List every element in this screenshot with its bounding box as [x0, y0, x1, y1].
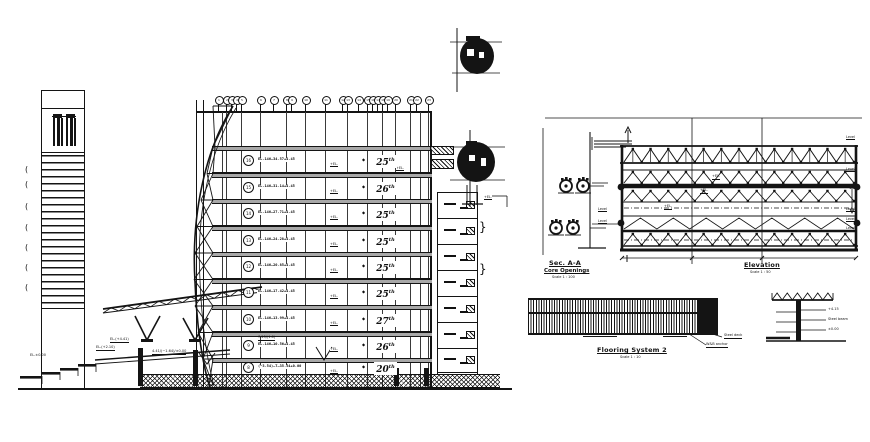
annex-shaft-hatch — [466, 356, 475, 364]
slab-bottom-line — [212, 177, 432, 178]
truss-band2b-node — [809, 190, 811, 192]
floor-name-label: 20th — [374, 362, 397, 375]
truss-band1-node — [826, 148, 828, 150]
truss-band2b-node — [658, 200, 660, 202]
ramp-label: EL.(+2.10) — [96, 346, 115, 351]
floor-name-label: 25th — [374, 235, 397, 248]
truss-band1 — [624, 149, 854, 162]
slab-top-line — [212, 305, 432, 306]
core-opening-bolt — [572, 219, 575, 222]
truss-annotation: +EL. — [712, 175, 720, 180]
lift-bar — [74, 118, 76, 146]
truss-band3b-node — [755, 233, 757, 235]
slab-top-line — [212, 358, 432, 359]
core-opening-pin — [554, 226, 557, 229]
floor-number-bubble: 13 — [243, 235, 254, 246]
column-line — [367, 112, 368, 388]
floor-el-tag: +EL. — [330, 243, 338, 247]
floor-el-tag: +EL. — [330, 295, 338, 299]
truss-band1-node — [667, 148, 669, 150]
facade-brace — [195, 280, 213, 307]
facade-mast-line — [196, 100, 197, 388]
truss-band3b-node — [694, 244, 696, 246]
site-step — [20, 376, 42, 379]
truss-band2b-node — [632, 190, 634, 192]
truss-band1-node — [738, 148, 740, 150]
annex-shaft-hatch — [466, 253, 475, 261]
floor-name-label: 25th — [374, 261, 397, 274]
truss-band2a-node — [658, 182, 660, 184]
column-base-pad — [189, 339, 201, 342]
floor-diamond-marker: ◆ — [362, 158, 365, 162]
column-line — [347, 112, 348, 388]
truss-band3b-node — [720, 233, 722, 235]
truss-band1-node — [782, 161, 784, 163]
floor-elevation-text: EL.146—31.14+4.45 — [257, 185, 296, 189]
tower-tick: ( — [25, 264, 28, 273]
annex-room-mark — [444, 203, 456, 205]
facade-brace — [198, 333, 213, 360]
tree-detail-label: Steel beam — [828, 318, 848, 322]
column-line — [241, 112, 242, 388]
floor-diamond-marker: ◆ — [362, 185, 365, 189]
grid-bubble: 10 — [302, 96, 311, 105]
grid-bubble: 5 — [238, 96, 247, 105]
grid-bubble: 14 — [355, 96, 364, 105]
annex-shaft-hatch — [466, 279, 475, 287]
annex-shaft-hatch — [466, 201, 475, 209]
truss-band2a-node — [809, 171, 811, 173]
level-tag-right: Level — [846, 168, 855, 172]
canopy-web — [143, 304, 151, 307]
truss-band3a — [624, 218, 854, 229]
core-opening-bolt — [576, 220, 579, 223]
dim-arrow — [850, 185, 854, 189]
canopy-web — [167, 299, 175, 305]
slab-bottom-line — [212, 203, 432, 204]
sec-aa-title: Sec. A-A — [549, 260, 581, 267]
truss-band2b-node — [817, 200, 819, 202]
tower-louver-stripes — [42, 155, 84, 308]
annex-room-mark — [444, 255, 456, 257]
column-base-pad — [141, 339, 153, 342]
foundation-hatch — [140, 374, 432, 388]
annex-room-mark — [444, 281, 456, 283]
floor-diamond-marker: ◆ — [362, 238, 365, 242]
canopy-web — [159, 301, 167, 304]
flooring-callout: W&B anchor — [706, 343, 728, 348]
truss-band3b-node — [809, 233, 811, 235]
truss-band2a-node — [738, 171, 740, 173]
truss-band2b-node — [649, 190, 651, 192]
attic-el-tag: +EL. — [396, 167, 404, 171]
floor-elevation-text: EL.146—34.57+4.45 — [257, 158, 296, 162]
truss-pin — [618, 220, 625, 227]
truss-band3b-node — [800, 244, 802, 246]
dim-tick — [620, 256, 624, 260]
core-opening-bolt — [561, 178, 564, 181]
canopy-v-column — [135, 316, 160, 340]
truss-band2a — [624, 172, 854, 183]
truss-band1-node — [764, 161, 766, 163]
truss-band2a-node — [817, 182, 819, 184]
tower-divider — [41, 108, 85, 109]
annex-left-wall — [437, 192, 438, 374]
truss-band1-node — [658, 161, 660, 163]
truss-band3b-node — [658, 244, 660, 246]
floor-el-tag: +EL. — [330, 216, 338, 220]
truss-band1-node — [729, 161, 731, 163]
truss-band1-node — [702, 148, 704, 150]
grid-bubble: 13 — [344, 96, 353, 105]
truss-band3b-node — [676, 244, 678, 246]
canopy-web — [190, 297, 198, 301]
canopy-web — [119, 306, 127, 311]
truss-band3b-node — [640, 244, 642, 246]
truss-band3b-node — [632, 233, 634, 235]
facade-brace — [195, 306, 213, 333]
truss-band3b-node — [835, 244, 837, 246]
tower-tick: ( — [25, 181, 28, 190]
core-opening — [550, 222, 562, 234]
truss-band1-node — [817, 161, 819, 163]
truss-band2b-node — [844, 190, 846, 192]
floor-elevation-text: EL.146—20.85+4.45 — [257, 264, 296, 268]
truss-band2a-node — [685, 171, 687, 173]
annex-room-mark — [444, 333, 456, 335]
annex-el-tag: +EL. — [484, 196, 492, 200]
truss-band1-node — [800, 161, 802, 163]
canopy-web — [127, 306, 135, 309]
floor-elevation-text: EL.146—27.71+4.45 — [257, 211, 296, 215]
dim-tick — [760, 256, 764, 260]
facade-brace — [197, 227, 213, 254]
column-line — [260, 112, 261, 388]
floor-number-bubble: 12 — [243, 261, 254, 272]
tower-divider — [41, 308, 85, 309]
truss-band1-node — [853, 161, 855, 163]
flooring-callout: Steel deck — [724, 334, 742, 339]
ground-line — [18, 388, 512, 390]
tower-roof-line — [41, 90, 85, 91]
slab-top-line — [212, 331, 432, 332]
floor-diamond-marker: ◆ — [362, 211, 365, 215]
truss-band3b-node — [685, 233, 687, 235]
facade-brace — [198, 306, 213, 333]
grid-bubble: 6 — [257, 96, 266, 105]
core-opening — [560, 180, 572, 192]
tower-tick: ( — [25, 203, 28, 212]
facade-brace — [195, 253, 213, 280]
lift-bar — [57, 118, 60, 146]
truss-band2a-node — [755, 171, 757, 173]
annex-floor-line — [437, 192, 478, 193]
truss-band2b-node — [773, 190, 775, 192]
floor-name-label: 25th — [374, 287, 397, 300]
tower-right-wall — [84, 90, 85, 389]
truss-band3b-node — [738, 233, 740, 235]
floor-el-tag: +EL. — [330, 322, 338, 326]
truss-band3b-node — [649, 233, 651, 235]
core-opening-bolt — [569, 178, 572, 181]
tower-tick: ( — [25, 284, 28, 293]
core-opening-bolt — [578, 178, 581, 181]
floor-el-tag: +EL. — [330, 269, 338, 273]
ramp-label: 4.41/(−1.64)/±0.00 — [152, 350, 186, 355]
truss-band2b-node — [667, 190, 669, 192]
floor-diamond-marker: ◆ — [362, 290, 365, 294]
floor-name-label: 26th — [374, 340, 397, 353]
core-opening — [577, 180, 589, 192]
dim-tick — [690, 256, 694, 260]
lift-bar — [66, 118, 68, 146]
annex-brace-mark: } — [479, 221, 487, 233]
lift-bar — [53, 118, 55, 146]
truss-band1-node — [720, 148, 722, 150]
slab-bottom-line — [212, 283, 432, 284]
truss-band2b-node — [791, 190, 793, 192]
core-opening-pin — [581, 184, 584, 187]
canopy-post — [138, 348, 143, 386]
truss-band1-node — [747, 161, 749, 163]
tower-divider — [41, 152, 85, 153]
level-tag-left: Level — [598, 220, 607, 224]
lift-bar — [70, 118, 73, 146]
floor-el-tag: +EL. — [330, 348, 338, 352]
site-step — [42, 372, 60, 375]
truss-band3b-node — [826, 233, 828, 235]
core-opening-pin — [571, 226, 574, 229]
truss-band2a-node — [853, 182, 855, 184]
node-b-hole — [481, 158, 486, 166]
truss-pin — [854, 184, 861, 191]
truss-band2a-node — [826, 171, 828, 173]
floor-number-bubble: 15 — [243, 182, 254, 193]
site-step — [60, 368, 78, 371]
annex-room-mark — [444, 358, 456, 360]
node-a-cap — [466, 36, 480, 41]
floor-elevation-text: EL.146—13.99+4.45 — [257, 317, 296, 321]
level-tag-right: Level — [846, 227, 855, 231]
truss-band2b-node — [711, 200, 713, 202]
node-b-hole — [469, 155, 475, 161]
slab-top-line — [212, 172, 432, 173]
truss-band2b-node — [729, 200, 731, 202]
truss-band2b-node — [853, 200, 855, 202]
slab-bottom-line — [212, 336, 432, 337]
floor-number-bubble: 11 — [243, 287, 254, 298]
truss-band2a-node — [632, 171, 634, 173]
truss-band2b-node — [720, 190, 722, 192]
truss-band2a-node — [773, 171, 775, 173]
canopy-web — [175, 299, 183, 302]
annex-floor-line — [437, 322, 478, 323]
elevation-scale: Scale 1 : 50 — [750, 271, 771, 275]
truss-band2b-node — [826, 190, 828, 192]
column-line — [325, 112, 326, 388]
truss-band1-node — [711, 161, 713, 163]
truss-band2b — [624, 191, 854, 201]
annex-room-mark — [444, 229, 456, 231]
floor-diamond-marker: ◆ — [362, 264, 365, 268]
ramp-line — [95, 354, 230, 364]
flooring-scale: Scale 1 : 10 — [620, 356, 641, 360]
truss-band2a-node — [729, 182, 731, 184]
truss-band1-node — [835, 161, 837, 163]
lift-bar — [61, 118, 63, 146]
cad-sheet: ((((((( 12345678910111213141516171819202… — [0, 0, 870, 442]
canopy-web — [135, 304, 143, 309]
column-line — [305, 112, 306, 388]
floor-number-bubble: 14 — [243, 208, 254, 219]
canopy-web — [230, 290, 238, 296]
annex-floor-line — [437, 296, 478, 297]
truss-band2b-node — [764, 200, 766, 202]
canopy-web — [183, 297, 191, 303]
truss-annotation: +EL. — [700, 189, 708, 194]
facade-brace — [197, 200, 213, 227]
truss-band2a-node — [667, 171, 669, 173]
slab-top-line — [212, 146, 432, 147]
column-line — [222, 112, 223, 388]
floor-name-label: 26th — [374, 182, 397, 195]
truss-band3b-node — [817, 244, 819, 246]
annex-shaft-hatch — [466, 331, 475, 339]
truss-band3b-node — [667, 233, 669, 235]
tree-canopy-web — [772, 293, 833, 300]
truss-band2b-node — [676, 200, 678, 202]
level-tag-right: Level — [846, 208, 855, 212]
floor-elevation-text: EL.146—24.28+4.45 — [257, 238, 296, 242]
dim-tick — [854, 256, 858, 260]
annex-shaft-hatch — [466, 227, 475, 235]
ramp-label: EL.(+4.41) — [110, 338, 129, 343]
slab-top-line — [212, 225, 432, 226]
deck-solid-end — [698, 298, 718, 333]
floor-number-bubble: 8 — [243, 362, 254, 373]
core-opening-bolt — [551, 220, 554, 223]
annex-stub-hatch — [430, 159, 454, 169]
floor-number-bubble: 16 — [243, 155, 254, 166]
slab-bottom-line — [212, 230, 432, 231]
annex-floor-line — [437, 372, 478, 373]
truss-band1-node — [649, 148, 651, 150]
truss-band2b-node — [694, 200, 696, 202]
truss-band1-node — [844, 148, 846, 150]
floor-elevation-text: (−3.54)—T—35.54+0.00 — [257, 365, 302, 369]
floor-number-bubble: 9 — [243, 340, 254, 351]
floor-el-tag: +EL. — [330, 370, 338, 374]
truss-band3b-node — [773, 233, 775, 235]
tree-detail-label: ±0.00 — [828, 328, 839, 332]
slab-top-line — [212, 252, 432, 253]
truss-band3b-node — [702, 233, 704, 235]
truss-band2b-node — [835, 200, 837, 202]
canopy-web — [103, 308, 111, 313]
floor-el-tag: +EL. — [330, 190, 338, 194]
facade-mast-line — [203, 100, 204, 388]
annex-shaft-hatch — [466, 305, 475, 313]
site-step — [78, 364, 96, 367]
floor-number-bubble: 10 — [243, 314, 254, 325]
truss-band1-node — [685, 148, 687, 150]
truss-band2a-node — [649, 171, 651, 173]
truss-band2a-node — [694, 182, 696, 184]
tower-tick: ( — [25, 166, 28, 175]
floor-name-label: 27th — [374, 314, 397, 327]
truss-band3b-node — [764, 244, 766, 246]
truss-band2a-node — [764, 182, 766, 184]
slab-bottom-line — [212, 150, 432, 151]
level-tag-right: Level — [846, 218, 855, 222]
grid-bubble: 7 — [270, 96, 279, 105]
core-opening-pin — [564, 184, 567, 187]
truss-band2a-node — [800, 182, 802, 184]
level-tag-right: Level — [846, 136, 855, 140]
canopy-web — [151, 301, 159, 306]
deck-mid-chord — [528, 312, 718, 314]
floor-diamond-marker: ◆ — [362, 317, 365, 321]
truss-band1-node — [791, 148, 793, 150]
node-b-cap — [466, 141, 477, 147]
floor-diamond-marker: ◆ — [362, 343, 365, 347]
facade-brace — [195, 227, 213, 254]
floor-elevation-text: EL.146—17.42+4.45 — [257, 290, 296, 294]
elevation-title: Elevation — [744, 262, 780, 269]
node-a-hole — [479, 52, 484, 58]
floor-elevation-text: EL.146—10.56+4.45 — [257, 343, 296, 347]
tower-tick: ( — [25, 224, 28, 233]
deck-hatch-band — [528, 298, 718, 335]
truss-pin — [618, 184, 625, 191]
truss-band2a-node — [711, 182, 713, 184]
core-opening-bolt — [586, 178, 589, 181]
core-opening — [567, 222, 579, 234]
flooring-title: Flooring System 2 — [597, 347, 667, 354]
canopy-web — [206, 295, 214, 299]
sec-aa-scale: Scale 1 : 100 — [552, 276, 575, 280]
annex-floor-line — [437, 270, 478, 271]
truss-band2a-node — [702, 171, 704, 173]
truss-band2b-node — [685, 190, 687, 192]
truss-band1-node — [676, 161, 678, 163]
floor-name-label: 25th — [374, 155, 397, 168]
north-arrow-head — [625, 127, 631, 133]
truss-annotation: +EL. — [664, 205, 672, 210]
tower-tick: ( — [25, 244, 28, 253]
truss-band2b-node — [755, 190, 757, 192]
truss-band1-node — [773, 148, 775, 150]
truss-band2b-node — [782, 200, 784, 202]
truss-band1-node — [755, 148, 757, 150]
grid-bubble: 22 — [413, 96, 422, 105]
annex-room-mark — [444, 307, 456, 309]
truss-band3b-node — [791, 233, 793, 235]
truss-band3b — [624, 234, 854, 245]
annex-base-hatch — [432, 374, 500, 388]
floor-diamond-marker: ◆ — [362, 365, 365, 369]
truss-band2b-node — [747, 200, 749, 202]
canopy-post — [193, 350, 198, 386]
truss-band2a-node — [747, 182, 749, 184]
truss-band3b-node — [853, 244, 855, 246]
column-line — [428, 112, 429, 388]
truss-band2a-node — [782, 182, 784, 184]
truss-band2a-node — [676, 182, 678, 184]
grid-bubble: 11 — [322, 96, 331, 105]
canopy-web — [111, 308, 119, 311]
truss-band2a-node — [720, 171, 722, 173]
